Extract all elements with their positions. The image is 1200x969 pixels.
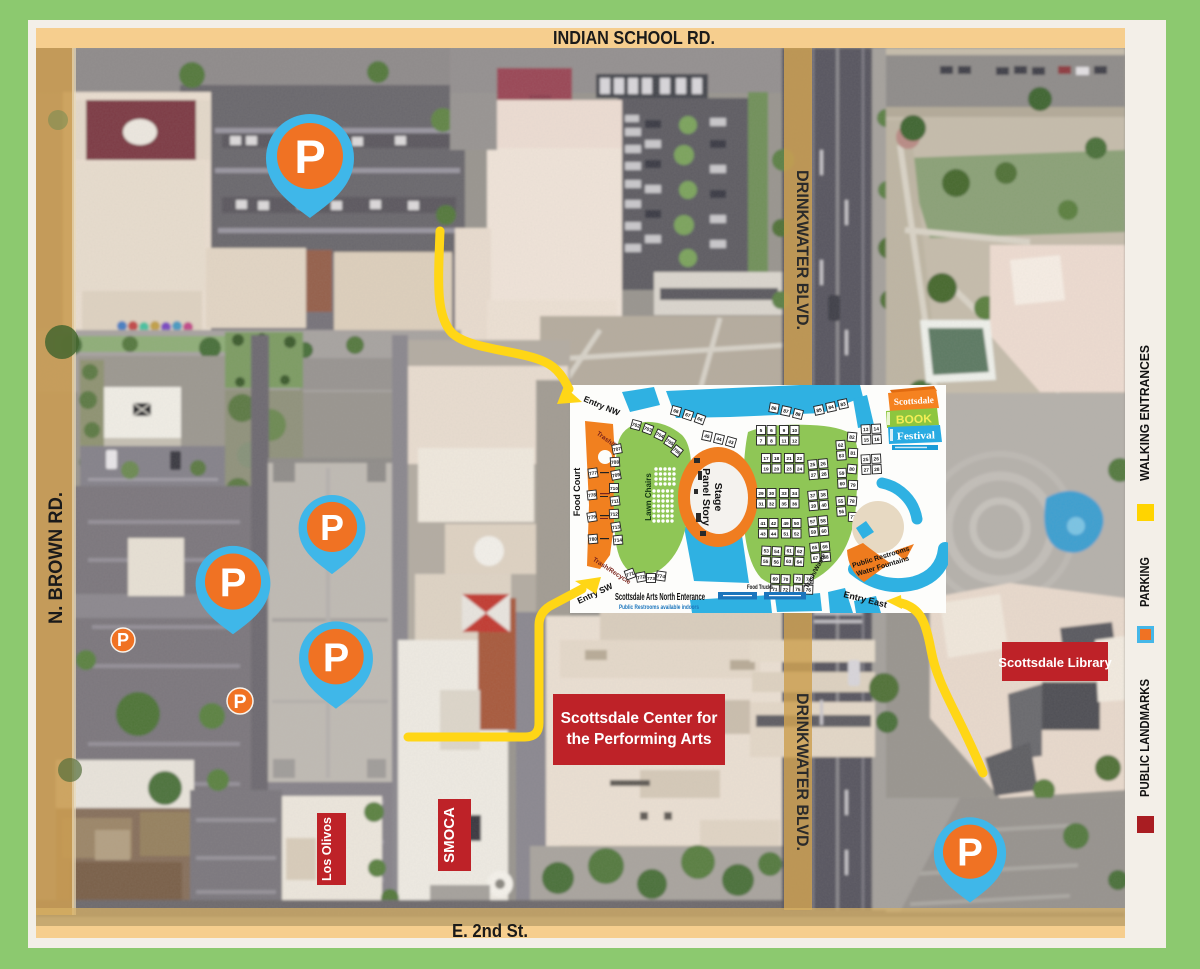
svg-text:21: 21 [786, 456, 792, 462]
svg-text:INDIAN SCHOOL RD.: INDIAN SCHOOL RD. [553, 28, 715, 48]
svg-text:7: 7 [760, 438, 763, 444]
svg-text:78: 78 [849, 499, 855, 505]
svg-text:62: 62 [838, 443, 844, 449]
svg-text:56: 56 [773, 559, 779, 565]
svg-text:24: 24 [797, 466, 803, 472]
svg-text:Los Olivos: Los Olivos [320, 817, 334, 881]
svg-text:P: P [117, 630, 129, 650]
svg-text:Festival: Festival [897, 430, 935, 442]
svg-text:5: 5 [760, 428, 763, 434]
svg-text:Public Restrooms available ind: Public Restrooms available indoors [619, 604, 699, 611]
svg-text:27: 27 [864, 467, 870, 473]
svg-text:33: 33 [781, 491, 787, 497]
svg-text:70: 70 [783, 577, 789, 583]
svg-text:17: 17 [763, 456, 769, 462]
svg-text:55: 55 [763, 559, 769, 565]
svg-text:30: 30 [769, 491, 775, 497]
svg-text:16: 16 [874, 437, 880, 443]
svg-text:E. 2nd St.: E. 2nd St. [452, 921, 528, 941]
svg-text:18: 18 [774, 456, 780, 462]
svg-text:20: 20 [774, 466, 780, 472]
svg-text:63: 63 [786, 559, 792, 565]
svg-text:34: 34 [792, 491, 798, 497]
svg-text:31: 31 [758, 501, 764, 507]
svg-text:773: 773 [647, 576, 655, 582]
svg-text:58: 58 [820, 518, 826, 524]
svg-text:79: 79 [850, 483, 856, 489]
svg-text:14: 14 [873, 426, 879, 432]
svg-text:36: 36 [792, 501, 798, 507]
svg-text:the Performing Arts: the Performing Arts [567, 731, 712, 748]
svg-text:8: 8 [770, 438, 773, 444]
svg-text:Scottsdale Arts North Enteranc: Scottsdale Arts North Enterance [615, 592, 705, 603]
svg-text:41: 41 [760, 521, 766, 527]
svg-text:44: 44 [771, 531, 777, 537]
svg-text:60: 60 [821, 529, 827, 535]
svg-text:40: 40 [821, 503, 827, 509]
svg-text:Stage: Stage [712, 483, 724, 512]
svg-text:15: 15 [864, 437, 870, 443]
svg-text:65: 65 [812, 545, 818, 551]
svg-text:27: 27 [811, 472, 817, 478]
svg-text:49: 49 [783, 521, 789, 527]
svg-text:PARKING: PARKING [1138, 557, 1152, 607]
svg-text:66: 66 [822, 544, 828, 550]
svg-text:50: 50 [794, 521, 800, 527]
svg-text:53: 53 [763, 548, 769, 554]
svg-text:42: 42 [771, 521, 777, 527]
svg-text:780: 780 [589, 536, 598, 543]
svg-text:56: 56 [839, 509, 845, 515]
svg-text:37: 37 [810, 493, 816, 499]
svg-text:778: 778 [588, 492, 597, 499]
svg-text:712: 712 [610, 512, 619, 518]
svg-text:59: 59 [811, 529, 817, 535]
svg-text:Scottsdale Center for: Scottsdale Center for [561, 710, 718, 727]
svg-text:63: 63 [839, 453, 845, 459]
svg-text:Scottsdale: Scottsdale [894, 396, 934, 408]
svg-text:Scottsdale Library: Scottsdale Library [998, 655, 1112, 670]
svg-text:Food Trucks: Food Trucks [747, 584, 773, 591]
svg-text:26: 26 [873, 456, 879, 462]
svg-text:711: 711 [611, 498, 620, 505]
svg-text:P: P [233, 691, 246, 713]
svg-text:51: 51 [783, 531, 789, 537]
svg-text:35: 35 [781, 501, 787, 507]
svg-text:32: 32 [769, 501, 775, 507]
svg-text:39: 39 [811, 503, 817, 509]
svg-text:DRINKWATER BLVD.: DRINKWATER BLVD. [793, 693, 811, 851]
svg-text:DRINKWATER BLVD.: DRINKWATER BLVD. [793, 170, 811, 330]
svg-text:29: 29 [758, 491, 764, 497]
svg-text:Panel Story: Panel Story [700, 468, 712, 526]
svg-text:SMOCA: SMOCA [441, 807, 458, 863]
svg-text:25: 25 [863, 457, 869, 463]
svg-text:59: 59 [839, 471, 845, 477]
svg-text:10: 10 [792, 428, 798, 434]
svg-text:28: 28 [821, 472, 827, 478]
svg-text:69: 69 [772, 577, 778, 583]
svg-text:22: 22 [797, 456, 803, 462]
svg-text:BOOK: BOOK [896, 413, 933, 426]
svg-text:62: 62 [797, 549, 803, 555]
svg-text:12: 12 [792, 438, 798, 444]
svg-text:774: 774 [657, 573, 666, 580]
svg-text:19: 19 [763, 466, 769, 472]
svg-text:73: 73 [795, 577, 801, 583]
svg-text:64: 64 [796, 559, 802, 565]
svg-text:80: 80 [849, 467, 855, 473]
svg-text:57: 57 [810, 519, 816, 525]
svg-text:54: 54 [774, 549, 780, 555]
svg-text:38: 38 [820, 492, 826, 498]
svg-text:28: 28 [874, 467, 880, 473]
svg-text:WALKING ENTRANCES: WALKING ENTRANCES [1138, 345, 1152, 481]
svg-text:23: 23 [786, 466, 792, 472]
svg-text:777: 777 [589, 470, 598, 477]
svg-text:55: 55 [838, 499, 844, 505]
svg-text:9: 9 [783, 428, 786, 434]
svg-text:25: 25 [810, 462, 816, 468]
svg-text:N. BROWN RD.: N. BROWN RD. [46, 492, 67, 624]
svg-text:61: 61 [786, 548, 792, 554]
svg-text:710: 710 [610, 486, 618, 492]
svg-text:Food Court: Food Court [572, 468, 582, 517]
svg-text:6: 6 [770, 428, 773, 434]
svg-text:11: 11 [781, 438, 786, 444]
svg-text:PUBLIC LANDMARKS: PUBLIC LANDMARKS [1138, 679, 1152, 797]
svg-text:81: 81 [850, 451, 856, 457]
svg-text:60: 60 [840, 481, 846, 487]
svg-text:82: 82 [849, 435, 855, 441]
svg-text:26: 26 [820, 461, 826, 467]
svg-text:52: 52 [794, 531, 800, 537]
svg-text:708: 708 [611, 460, 620, 467]
svg-text:Lawn Chairs: Lawn Chairs [644, 473, 653, 521]
svg-text:714: 714 [614, 537, 623, 544]
svg-text:43: 43 [760, 531, 766, 537]
svg-text:13: 13 [863, 427, 869, 433]
